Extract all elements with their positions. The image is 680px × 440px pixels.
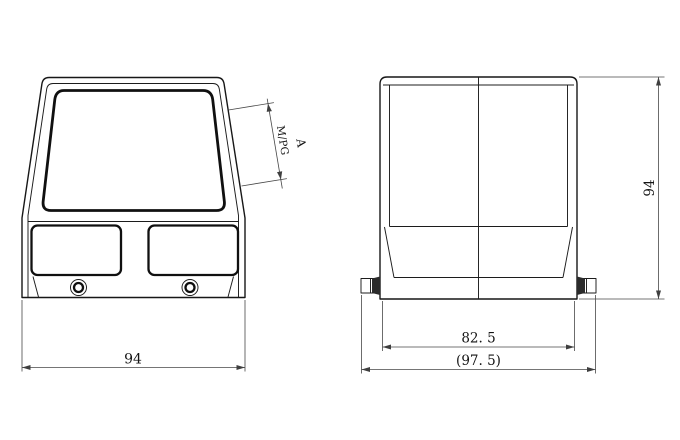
drawing-canvas: 94 M/PG A 94 — [0, 0, 680, 440]
dimension-text-front-width: 94 — [124, 352, 142, 368]
drawing-background — [0, 0, 680, 440]
side-guide-lug-left-wedge — [372, 277, 380, 296]
dimension-text-flange-width: 82. 5 — [461, 331, 495, 347]
dimension-text-overall-width: (97. 5) — [456, 353, 501, 369]
dimension-text-side-height: 94 — [642, 179, 658, 196]
technical-drawing: 94 M/PG A 94 — [0, 0, 680, 440]
side-guide-lug-right-wedge — [577, 277, 585, 296]
